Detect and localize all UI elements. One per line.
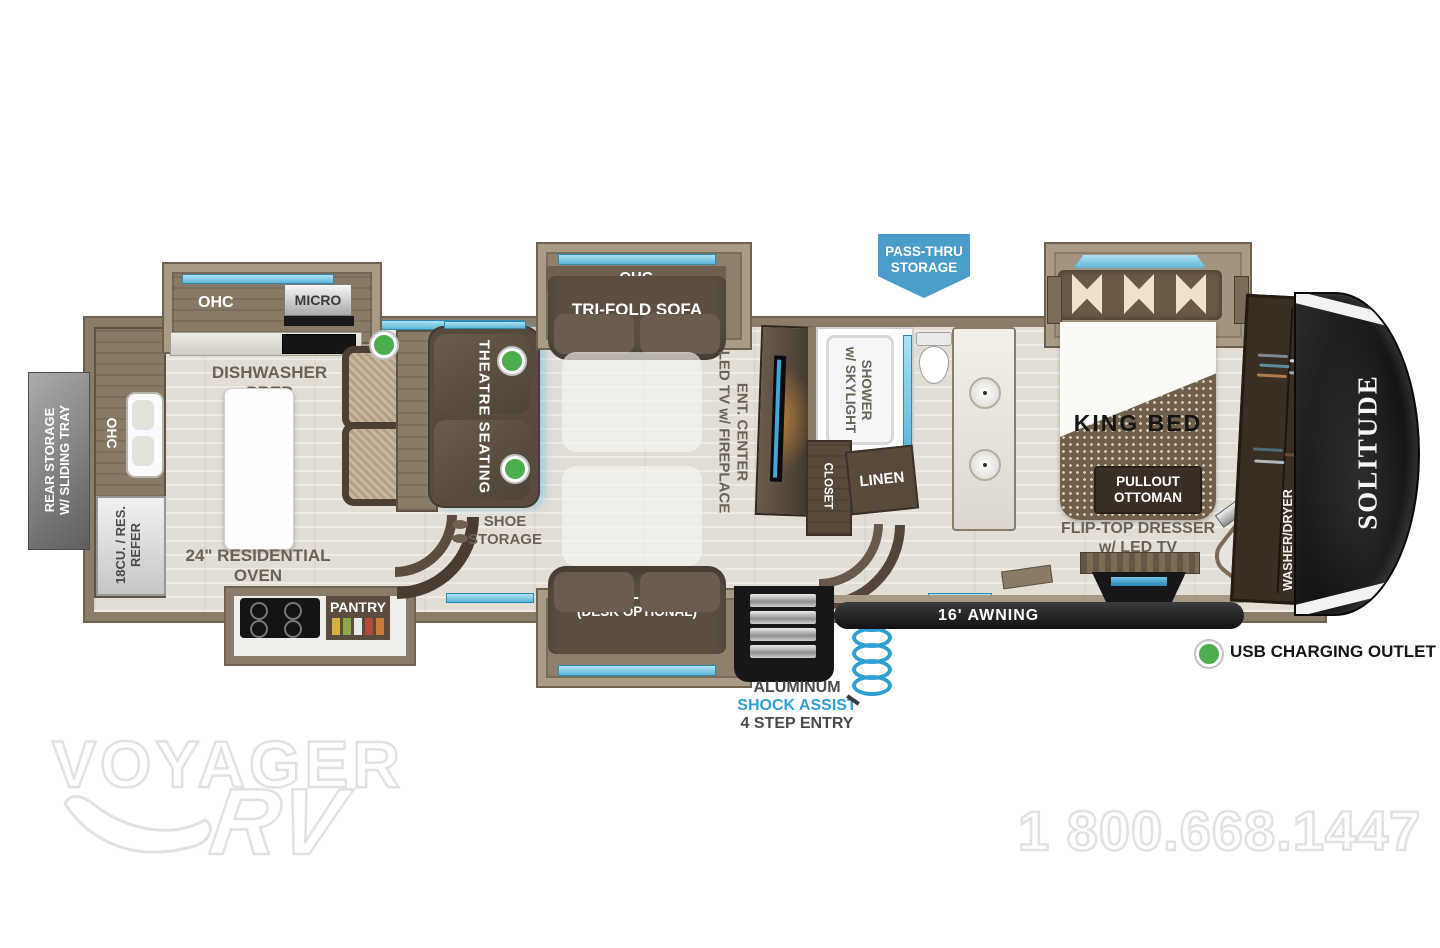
awning-label: 16' AWNING (834, 602, 1244, 629)
floorplan-canvas: VOYAGER RV 1 800.668.1447 REAR STORAGE W… (0, 0, 1440, 948)
range-bump: PANTRY (226, 588, 414, 664)
usb-outlet-dot (499, 348, 525, 374)
shoe-storage-label: SHOE STORAGE (468, 513, 542, 548)
pantry-item (376, 618, 384, 635)
flip-top-dresser (1080, 552, 1198, 602)
sofa-top-window (558, 254, 716, 265)
entry-label: ALUMINUM SHOCK ASSIST 4 STEP ENTRY (727, 679, 867, 733)
ottoman-label: PULLOUT OTTOMAN (1096, 468, 1200, 505)
step-treads (750, 594, 816, 662)
shower-glass (903, 335, 912, 451)
shoes-icon (452, 534, 468, 543)
kitchen-island (224, 388, 294, 550)
range (240, 598, 320, 638)
headboard-tuft (1124, 274, 1154, 314)
pantry-item (354, 618, 362, 635)
rug (562, 352, 702, 452)
pantry-items (332, 618, 384, 635)
step-tread (750, 628, 816, 641)
rug (562, 466, 702, 566)
headboard-tuft (1176, 274, 1206, 314)
vanity-sink (969, 377, 1001, 409)
usb-outlet-dot (371, 332, 397, 358)
headboard (1058, 270, 1222, 320)
theatre-window-light (444, 321, 526, 329)
cooktop-inset (284, 316, 354, 326)
dresser-tv (1080, 572, 1198, 602)
usb-outlet-dot (502, 456, 528, 482)
step-tread (750, 611, 816, 624)
pass-thru-label: PASS-THRU STORAGE (878, 234, 970, 275)
brand-logo: SOLITUDE (1353, 374, 1384, 530)
tri-fold-sofa-top: TRI-FOLD SOFA (548, 276, 726, 360)
sink-bowl (132, 436, 154, 466)
pantry-label: PANTRY (326, 599, 390, 615)
refer-label: 18CU. / RES. REFER (114, 497, 144, 593)
vanity (952, 327, 1016, 531)
sofa-cushion (640, 314, 720, 354)
usb-legend-label: USB CHARGING OUTLET (1230, 642, 1436, 662)
toilet (914, 330, 952, 384)
hanging-clothes (1257, 373, 1287, 378)
sofa-cushion (640, 572, 720, 612)
burner (250, 620, 268, 638)
sofa-cushion (554, 314, 634, 354)
nightstand (1047, 276, 1062, 324)
hanging-clothes (1259, 364, 1289, 369)
pantry-item (365, 618, 373, 635)
drain (983, 391, 987, 395)
pass-thru-banner: PASS-THRU STORAGE (878, 234, 970, 298)
bath-wall (808, 327, 816, 447)
drain (983, 463, 987, 467)
theatre-label: THEATRE SEATING (475, 340, 492, 494)
tv-screen (1111, 577, 1168, 586)
rear-ohc-label: OHC (104, 417, 120, 448)
awning-bar: 16' AWNING (834, 602, 1244, 629)
shower-label: SHOWER w/ SKYLIGHT (842, 335, 874, 445)
step-tread (750, 594, 816, 607)
step-tread (750, 645, 816, 658)
window (446, 593, 534, 603)
burner (250, 602, 268, 620)
toilet-tank (916, 332, 952, 346)
pantry-item (332, 618, 340, 635)
bedroom-window (1074, 255, 1206, 268)
pullout-ottoman: PULLOUT OTTOMAN (1094, 466, 1202, 514)
burner (284, 602, 302, 620)
vanity-sink (969, 449, 1001, 481)
hanging-clothes (1254, 459, 1284, 464)
toilet-bowl (919, 346, 949, 384)
sofa-cushion (554, 572, 634, 612)
hanging-clothes (1253, 447, 1283, 452)
hanging-clothes (1258, 354, 1288, 359)
shoes-icon (452, 520, 468, 529)
entry-steps (734, 586, 834, 682)
kitchen-ohc-label: OHC (198, 294, 234, 312)
oven-label: 24" RESIDENTIAL OVEN (178, 546, 338, 586)
watermark-phone: 1 800.668.1447 (1018, 798, 1421, 863)
micro-label: MICRO (295, 292, 342, 308)
king-bed-label: KING BED (1060, 410, 1216, 437)
rear-storage-label: REAR STORAGE W/ SLIDING TRAY (43, 380, 73, 540)
watermark-dealer-rv: RV (204, 768, 350, 876)
watermark-swoosh-icon (55, 782, 220, 897)
sink-bowl (132, 400, 154, 430)
kitchen-window (182, 274, 334, 284)
pantry: PANTRY (326, 596, 390, 640)
usb-legend-dot (1196, 641, 1222, 667)
pantry-item (343, 618, 351, 635)
microwave: MICRO (284, 284, 352, 316)
rear-sink (126, 392, 164, 478)
burner (284, 620, 302, 638)
headboard-tuft (1072, 274, 1102, 314)
tri-fold-sofa-bottom: TRI-FOLD SOFA (DESK OPTIONAL) (548, 566, 726, 654)
sofa-bottom-window (558, 665, 716, 676)
dresser-top (1080, 552, 1200, 574)
